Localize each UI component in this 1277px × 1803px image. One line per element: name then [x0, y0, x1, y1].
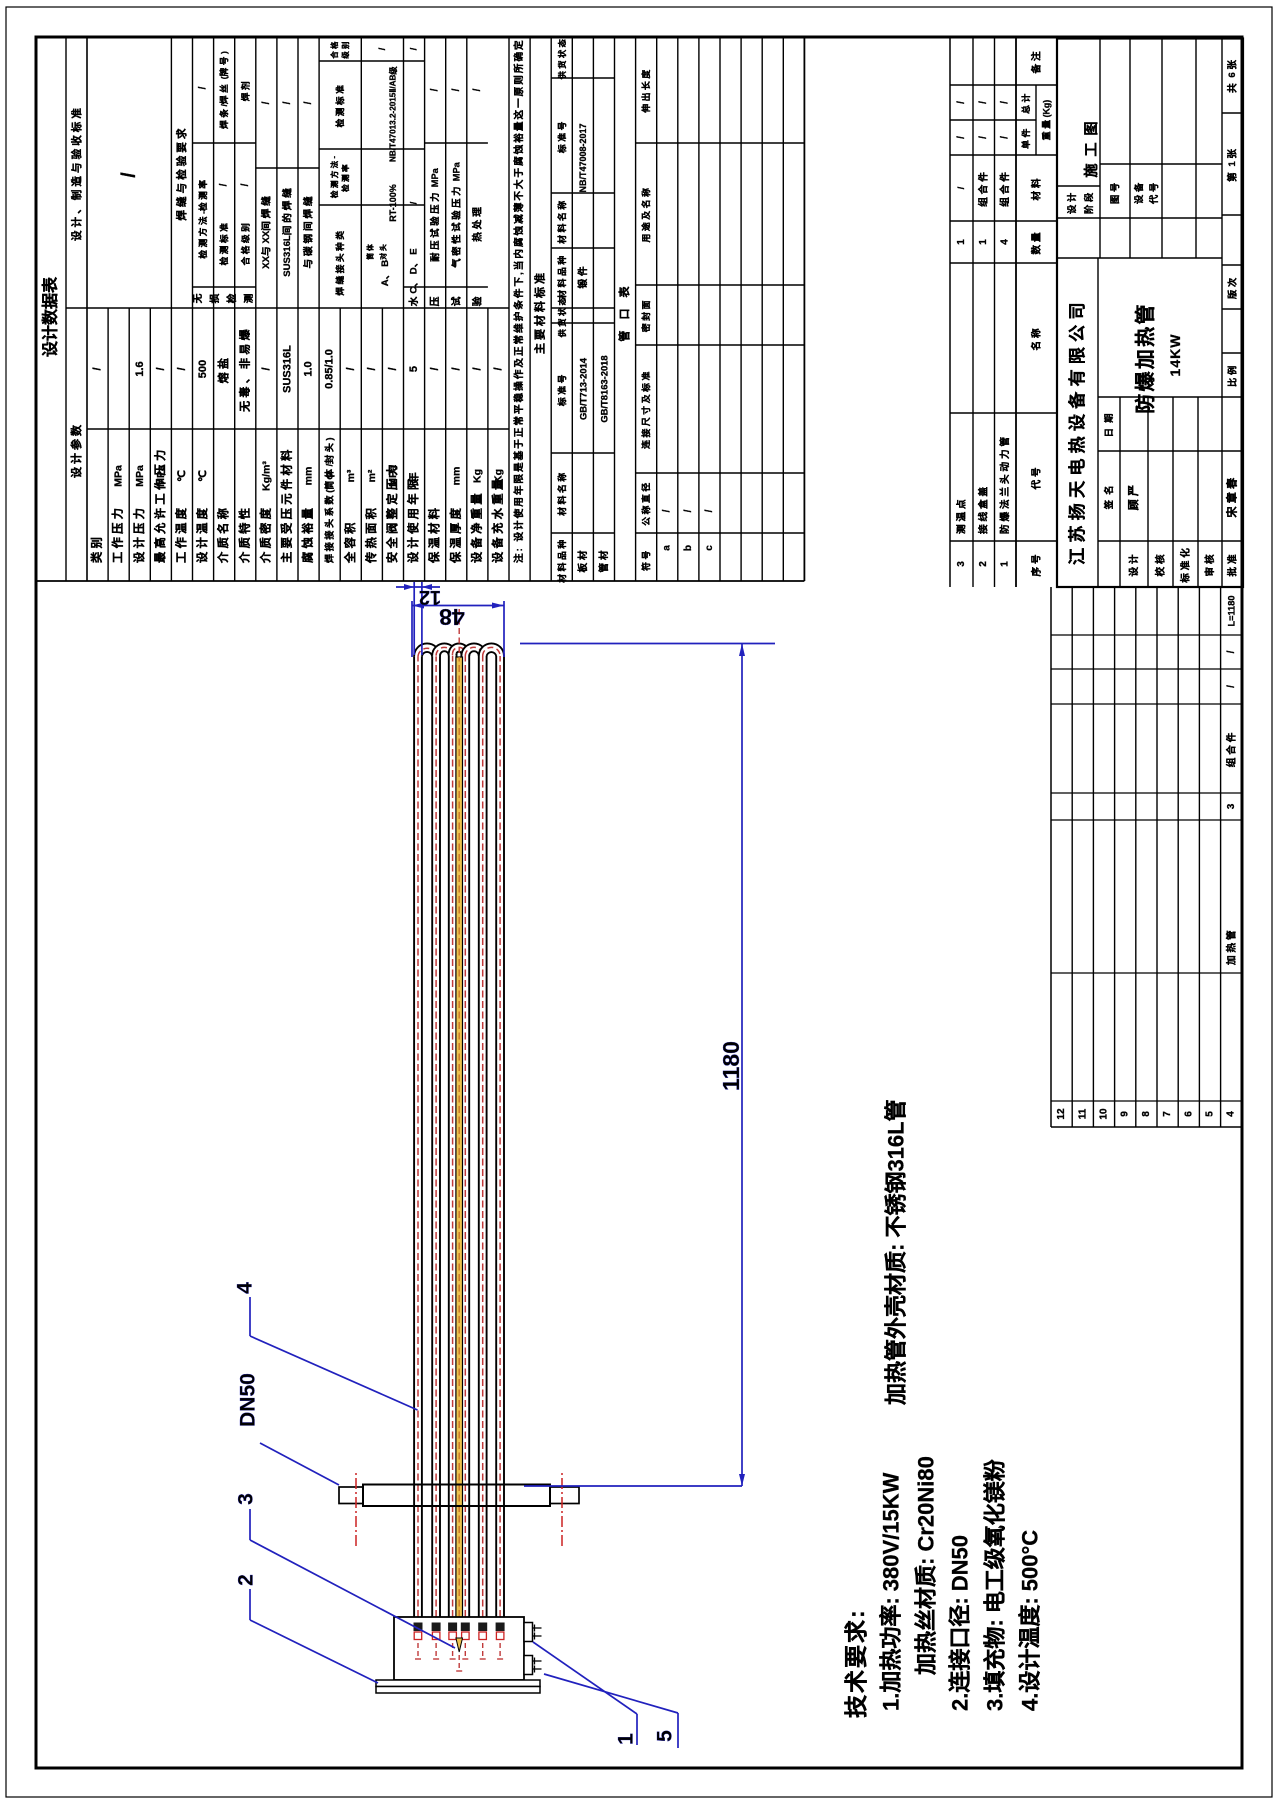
svg-text:3: 3	[956, 561, 967, 567]
svg-text:介质密度: 介质密度	[258, 505, 272, 564]
svg-text:材料: 材料	[1030, 176, 1042, 202]
svg-text:介质名称: 介质名称	[216, 505, 230, 564]
svg-text:材料名称: 材料名称	[556, 470, 567, 516]
svg-text:mm: mm	[450, 467, 462, 486]
svg-text:DN50: DN50	[237, 1373, 260, 1427]
svg-text:4: 4	[1226, 1111, 1237, 1117]
svg-text:公称直径: 公称直径	[640, 480, 651, 526]
svg-text:/: /	[704, 509, 715, 512]
svg-text:/: /	[377, 47, 388, 50]
svg-text:试: 试	[450, 294, 462, 307]
svg-text:熔盐: 熔盐	[216, 355, 230, 384]
svg-text:组合件: 组合件	[977, 169, 989, 206]
svg-text:测温点: 测温点	[955, 497, 967, 534]
svg-text:5: 5	[408, 366, 420, 372]
svg-text:标准化: 标准化	[1179, 545, 1191, 583]
svg-text:m²: m²	[366, 469, 378, 482]
svg-text:接线盒盖: 接线盒盖	[977, 484, 989, 534]
svg-text:批准: 批准	[1226, 552, 1238, 577]
svg-text:℃: ℃	[176, 470, 188, 482]
svg-text:/: /	[240, 183, 251, 186]
svg-text:SUS316L: SUS316L	[281, 345, 293, 393]
svg-text:连接尺寸及标准: 连接尺寸及标准	[640, 369, 651, 449]
svg-text:/: /	[472, 88, 483, 91]
svg-text:设计使用年限: 设计使用年限	[406, 475, 420, 563]
svg-text:2.连接口径: DN50: 2.连接口径: DN50	[948, 1535, 973, 1711]
svg-text:1: 1	[1000, 561, 1011, 567]
svg-text:9: 9	[1120, 1111, 1131, 1117]
svg-text:焊条/焊丝 (牌号): 焊条/焊丝 (牌号)	[218, 51, 229, 129]
svg-text:检测方法-: 检测方法-	[329, 155, 339, 198]
svg-text:加热丝材质: Cr20Ni80: 加热丝材质: Cr20Ni80	[914, 1456, 939, 1676]
svg-text:筒体: 筒体	[365, 242, 374, 260]
svg-text:Kg/m³: Kg/m³	[260, 461, 272, 491]
svg-text:/: /	[956, 136, 967, 139]
svg-text:焊缝接头种类: 焊缝接头种类	[334, 228, 345, 295]
svg-text:工作温度: 工作温度	[174, 505, 188, 563]
svg-text:设备净重量: 设备净重量	[469, 490, 483, 563]
svg-text:/: /	[219, 183, 230, 186]
svg-text:加热管: 加热管	[1225, 928, 1237, 966]
svg-text:/: /	[198, 86, 209, 89]
svg-text:主要材料标准: 主要材料标准	[533, 270, 547, 354]
svg-text:1.6: 1.6	[134, 361, 146, 376]
svg-text:/: /	[155, 367, 167, 370]
svg-text:2: 2	[235, 1574, 258, 1586]
svg-text:图号: 图号	[1110, 180, 1120, 204]
svg-text:b: b	[683, 545, 694, 551]
svg-text:无: 无	[192, 291, 203, 305]
svg-text:检测标准: 检测标准	[218, 221, 229, 266]
svg-text:设计: 设计	[1066, 190, 1077, 214]
svg-text:名称: 名称	[1030, 326, 1042, 351]
svg-text:/: /	[119, 172, 140, 178]
svg-text:顾严: 顾严	[1127, 482, 1140, 511]
svg-text:水: 水	[408, 294, 420, 308]
svg-text:验: 验	[471, 294, 483, 307]
svg-text:MPa: MPa	[134, 465, 146, 487]
svg-text:5: 5	[654, 1730, 677, 1742]
svg-text:共 6 张: 共 6 张	[1226, 57, 1238, 93]
svg-text:/: /	[956, 186, 967, 189]
svg-text:检测方法-检测率: 检测方法-检测率	[197, 177, 208, 258]
svg-text:伸出长度: 伸出长度	[640, 67, 651, 114]
svg-text:代号: 代号	[1148, 180, 1159, 205]
svg-text:施工图: 施工图	[1083, 115, 1099, 178]
svg-text:/: /	[1226, 685, 1237, 688]
svg-text:MPa: MPa	[155, 465, 167, 487]
svg-text:5: 5	[1205, 1111, 1216, 1117]
svg-text:校核: 校核	[1154, 552, 1166, 577]
svg-text:3: 3	[1226, 803, 1237, 809]
svg-text:MPa: MPa	[387, 465, 399, 487]
svg-text:/: /	[662, 509, 673, 512]
svg-text:合格: 合格	[330, 39, 339, 59]
svg-text:组合件: 组合件	[999, 169, 1011, 206]
svg-text:焊接接头系数(筒体/封头): 焊接接头系数(筒体/封头)	[324, 437, 335, 563]
svg-text:损: 损	[208, 291, 220, 304]
svg-text:1: 1	[615, 1733, 638, 1745]
svg-text:技术要求:: 技术要求:	[843, 1608, 869, 1718]
svg-text:管 口 表: 管 口 表	[617, 282, 631, 341]
svg-text:设计数据表: 设计数据表	[41, 276, 60, 357]
svg-text:备注: 备注	[1030, 49, 1042, 75]
svg-text:级别: 级别	[341, 39, 350, 58]
svg-text:1.0: 1.0	[303, 361, 315, 376]
svg-text:与碳钢间焊缝: 与碳钢间焊缝	[302, 194, 314, 269]
svg-text:12: 12	[1056, 1108, 1067, 1120]
svg-text:/: /	[978, 101, 989, 104]
svg-text:数量: 数量	[1030, 230, 1042, 256]
svg-text:介质特性: 介质特性	[237, 505, 251, 564]
svg-text:材料名称: 材料名称	[556, 198, 567, 244]
svg-text:/: /	[260, 367, 272, 370]
svg-text:最高允许工作压力: 最高允许工作压力	[153, 446, 167, 563]
svg-text:/: /	[429, 367, 441, 370]
svg-text:XX与XX间焊缝: XX与XX间焊缝	[260, 193, 272, 269]
svg-text:腐蚀裕量: 腐蚀裕量	[301, 505, 315, 563]
svg-text:3.填充物: 电工级氧化镁粉: 3.填充物: 电工级氧化镁粉	[983, 1459, 1008, 1711]
svg-text:/: /	[451, 88, 462, 91]
svg-text:序号: 序号	[1030, 552, 1042, 577]
svg-text:m³: m³	[345, 469, 357, 482]
svg-text:500: 500	[197, 360, 209, 378]
svg-text:保温厚度: 保温厚度	[448, 505, 462, 564]
svg-text:/: /	[1226, 650, 1237, 653]
svg-text:RT-100%: RT-100%	[388, 184, 398, 222]
svg-text:a: a	[662, 545, 673, 551]
svg-text:设计温度: 设计温度	[195, 505, 209, 563]
svg-text:GB/T713-2014: GB/T713-2014	[577, 357, 588, 420]
svg-text:锻件: 锻件	[576, 264, 588, 289]
svg-text:传热面积: 传热面积	[364, 505, 378, 564]
svg-text:/: /	[92, 367, 104, 370]
svg-text:/: /	[409, 201, 420, 204]
svg-text:检: 检	[225, 291, 237, 304]
svg-text:4: 4	[1000, 239, 1011, 245]
svg-text:1: 1	[956, 239, 967, 245]
svg-text:重量(Kg): 重量(Kg)	[1041, 100, 1052, 140]
svg-text:/: /	[366, 367, 378, 370]
svg-text:注: 设计使用年限是基于正常平稳操作及正常维护条件下,当内腐: 注: 设计使用年限是基于正常平稳操作及正常维护条件下,当内腐蚀减薄不大于腐蚀裕量…	[513, 34, 525, 563]
svg-text:12: 12	[419, 586, 441, 608]
svg-text:φ: φ	[324, 472, 336, 480]
svg-text:A、B: A、B	[380, 260, 391, 286]
svg-text:/: /	[956, 101, 967, 104]
svg-text:工作压力: 工作压力	[111, 505, 125, 563]
svg-text:4: 4	[234, 1282, 257, 1294]
svg-text:/: /	[409, 47, 420, 50]
svg-text:/: /	[1000, 101, 1011, 104]
svg-text:材料品种: 材料品种	[556, 537, 567, 583]
svg-text:审核: 审核	[1204, 552, 1216, 577]
svg-text:设备充水重量: 设备充水重量	[491, 475, 505, 563]
svg-text:/: /	[345, 367, 357, 370]
svg-text:防爆加热管: 防爆加热管	[1133, 302, 1157, 414]
svg-text:℃: ℃	[197, 470, 209, 482]
svg-text:NB/T47013.2-2015Ⅱ/AB级: NB/T47013.2-2015Ⅱ/AB级	[387, 64, 397, 162]
svg-text:气密性试验压力 MPa: 气密性试验压力 MPa	[450, 161, 461, 268]
svg-text:标准号: 标准号	[556, 119, 567, 154]
svg-text:板材: 板材	[576, 548, 588, 573]
svg-text:/: /	[493, 367, 505, 370]
svg-text:测: 测	[242, 291, 254, 304]
svg-text:阶段: 阶段	[1083, 190, 1094, 214]
svg-text:mm: mm	[303, 467, 315, 486]
svg-text:2: 2	[978, 561, 989, 567]
svg-text:/: /	[387, 367, 399, 370]
svg-text:保温材料: 保温材料	[427, 505, 441, 564]
svg-text:检测标准: 检测标准	[334, 83, 345, 128]
svg-text:设备: 设备	[1133, 180, 1144, 204]
svg-text:单件: 单件	[1020, 126, 1031, 149]
svg-text:年: 年	[407, 469, 420, 483]
svg-text:10: 10	[1099, 1108, 1110, 1120]
svg-text:/: /	[450, 367, 462, 370]
svg-text:48: 48	[439, 604, 465, 630]
svg-text:设计压力: 设计压力	[132, 505, 146, 563]
svg-text:/: /	[303, 101, 314, 104]
svg-text:4.设计温度: 500°C: 4.设计温度: 500°C	[1018, 1530, 1043, 1711]
svg-text:压: 压	[430, 294, 441, 307]
svg-text:加热管外壳材质: 不锈钢316L管: 加热管外壳材质: 不锈钢316L管	[884, 1099, 909, 1406]
svg-text:/: /	[430, 88, 441, 91]
svg-text:设计参数: 设计参数	[69, 422, 83, 478]
svg-text:防爆法兰头动力管: 防爆法兰头动力管	[999, 434, 1011, 534]
svg-text:对头: 对头	[378, 242, 387, 260]
svg-text:版次: 版次	[1227, 275, 1238, 300]
svg-text:C、D、E: C、D、E	[409, 248, 420, 294]
svg-text:总计: 总计	[1020, 91, 1031, 114]
svg-text:供货状态: 供货状态	[556, 37, 566, 81]
svg-text:无毒、非易爆: 无毒、非易爆	[237, 326, 251, 413]
svg-text:供货状态: 供货状态	[556, 295, 566, 339]
svg-text:3: 3	[235, 1493, 258, 1505]
svg-text:1180: 1180	[718, 1041, 744, 1091]
svg-text:/: /	[176, 367, 188, 370]
svg-text:用途及名称: 用途及名称	[640, 186, 651, 243]
svg-text:密封面: 密封面	[640, 298, 651, 333]
svg-text:/: /	[471, 367, 483, 370]
svg-text:代号: 代号	[1030, 465, 1042, 491]
svg-text:材料品种: 材料品种	[556, 253, 567, 299]
svg-text:合格级别: 合格级别	[239, 221, 250, 266]
svg-text:c: c	[704, 545, 715, 551]
svg-text:SUS316L间的焊缝: SUS316L间的焊缝	[281, 185, 293, 277]
svg-text:6: 6	[1183, 1111, 1194, 1117]
svg-text:1: 1	[978, 239, 989, 245]
svg-text:0.85/1.0: 0.85/1.0	[324, 349, 336, 389]
svg-text:宋章春: 宋章春	[1225, 475, 1239, 519]
svg-text:热处理: 热处理	[471, 204, 483, 241]
svg-text:签 名: 签 名	[1103, 483, 1114, 511]
svg-text:L=1180: L=1180	[1226, 596, 1236, 627]
svg-text:设计、制造与验收标准: 设计、制造与验收标准	[70, 105, 83, 241]
svg-text:11: 11	[1077, 1108, 1088, 1119]
svg-text:/: /	[1000, 136, 1011, 139]
svg-text:管材: 管材	[598, 548, 610, 573]
svg-text:/: /	[261, 101, 272, 104]
svg-text:8: 8	[1141, 1111, 1152, 1117]
svg-text:GB/T8163-2018: GB/T8163-2018	[599, 355, 610, 422]
svg-text:/: /	[282, 101, 293, 104]
svg-text:比例: 比例	[1227, 363, 1238, 387]
svg-text:江苏扬天电热设备有限公司: 江苏扬天电热设备有限公司	[1067, 297, 1087, 565]
svg-text:NB/T47008-2017: NB/T47008-2017	[578, 123, 588, 192]
svg-text:符号: 符号	[640, 548, 651, 571]
svg-text:类别: 类别	[90, 534, 104, 563]
svg-text:设计: 设计	[1128, 552, 1140, 577]
svg-text:/: /	[683, 509, 694, 512]
svg-text:组合件: 组合件	[1225, 730, 1237, 767]
svg-text:/: /	[978, 136, 989, 139]
svg-text:Kg: Kg	[471, 469, 483, 483]
svg-text:Kg: Kg	[493, 469, 505, 483]
svg-text:标准号: 标准号	[556, 372, 567, 407]
svg-text:7: 7	[1162, 1111, 1173, 1117]
svg-text:全容积: 全容积	[343, 519, 357, 564]
svg-text:MPa: MPa	[113, 465, 125, 487]
svg-text:检测率: 检测率	[340, 162, 350, 192]
svg-text:14KW: 14KW	[1167, 334, 1183, 377]
svg-text:焊剂: 焊剂	[239, 79, 250, 101]
svg-text:主要受压元件材料: 主要受压元件材料	[279, 446, 293, 563]
svg-text:日 期: 日 期	[1103, 411, 1114, 438]
svg-text:耐压试验压力 MPa: 耐压试验压力 MPa	[429, 167, 440, 261]
svg-text:第 1 张: 第 1 张	[1226, 146, 1238, 182]
svg-text:焊缝与检验要求: 焊缝与检验要求	[175, 125, 188, 220]
svg-text:1.加热功率: 380V/15KW: 1.加热功率: 380V/15KW	[879, 1472, 904, 1711]
